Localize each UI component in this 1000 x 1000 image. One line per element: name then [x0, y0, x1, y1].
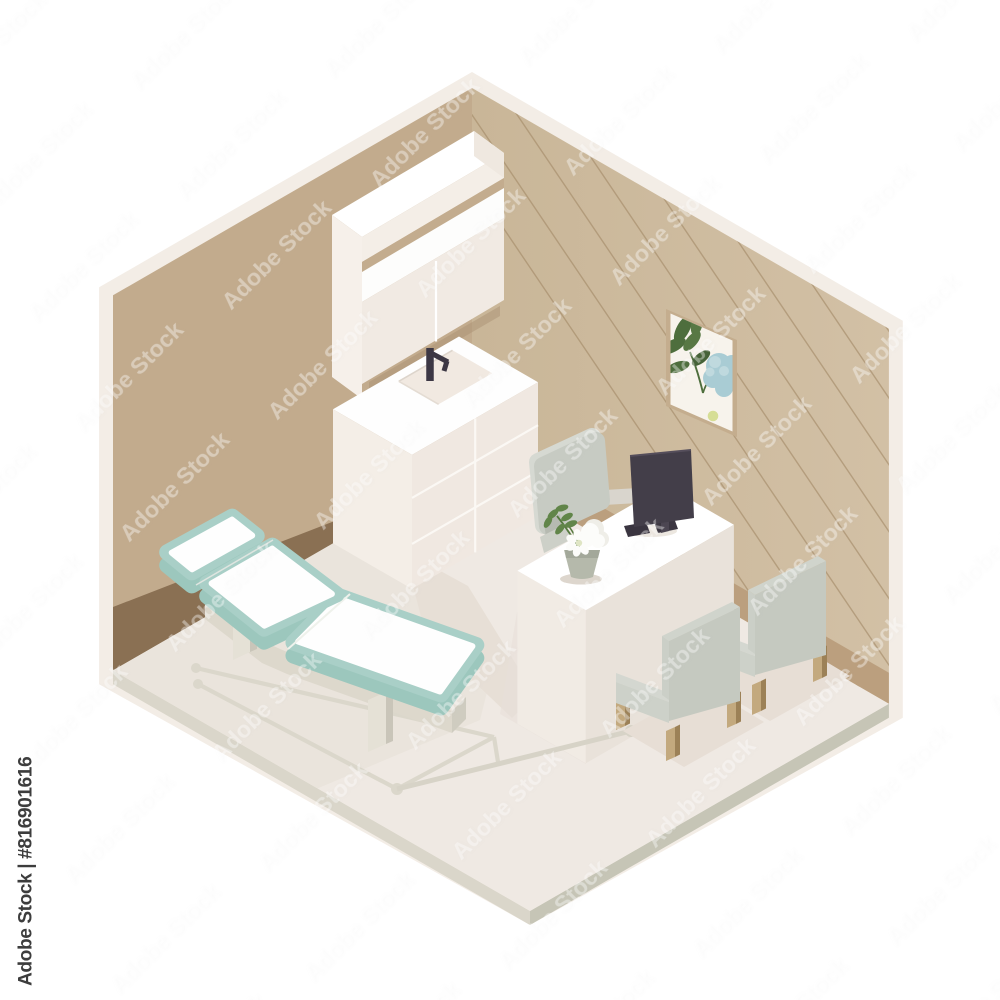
svg-text:Adobe Stock: Adobe Stock [298, 866, 419, 987]
svg-text:Adobe Stock: Adobe Stock [798, 158, 919, 279]
svg-text:Adobe Stock: Adobe Stock [0, 96, 97, 217]
svg-text:Adobe Stock: Adobe Stock [318, 0, 439, 82]
svg-text:Adobe Stock: Adobe Stock [512, 0, 633, 70]
svg-text:Adobe Stock | #816901616: Adobe Stock | #816901616 [16, 757, 37, 986]
svg-text:Adobe Stock: Adobe Stock [926, 940, 1000, 1000]
svg-text:Adobe Stock: Adobe Stock [0, 548, 87, 669]
svg-text:Adobe Stock: Adobe Stock [982, 598, 1000, 719]
svg-text:Adobe Stock: Adobe Stock [992, 146, 1000, 267]
svg-text:Adobe Stock: Adobe Stock [686, 842, 807, 963]
svg-text:Adobe Stock: Adobe Stock [880, 830, 1000, 951]
svg-text:Adobe Stock: Adobe Stock [0, 438, 41, 559]
svg-text:Adobe Stock: Adobe Stock [124, 0, 245, 94]
svg-text:Adobe Stock: Adobe Stock [732, 952, 853, 1000]
svg-text:Adobe Stock: Adobe Stock [900, 0, 1000, 46]
svg-text:Adobe Stock: Adobe Stock [58, 768, 179, 889]
svg-text:Adobe Stock: Adobe Stock [344, 976, 465, 1000]
svg-text:Adobe Stock: Adobe Stock [104, 878, 225, 999]
svg-text:Adobe Stock: Adobe Stock [538, 964, 659, 1000]
svg-text:Adobe Stock: Adobe Stock [936, 488, 1000, 609]
svg-text:Adobe Stock: Adobe Stock [170, 84, 291, 205]
svg-text:Adobe Stock: Adobe Stock [706, 0, 827, 58]
svg-text:Adobe Stock: Adobe Stock [0, 0, 51, 106]
svg-text:Adobe Stock: Adobe Stock [752, 48, 873, 169]
svg-text:Adobe Stock: Adobe Stock [150, 988, 271, 1000]
svg-text:Adobe Stock: Adobe Stock [890, 378, 1000, 499]
svg-text:Adobe Stock: Adobe Stock [946, 36, 1000, 157]
